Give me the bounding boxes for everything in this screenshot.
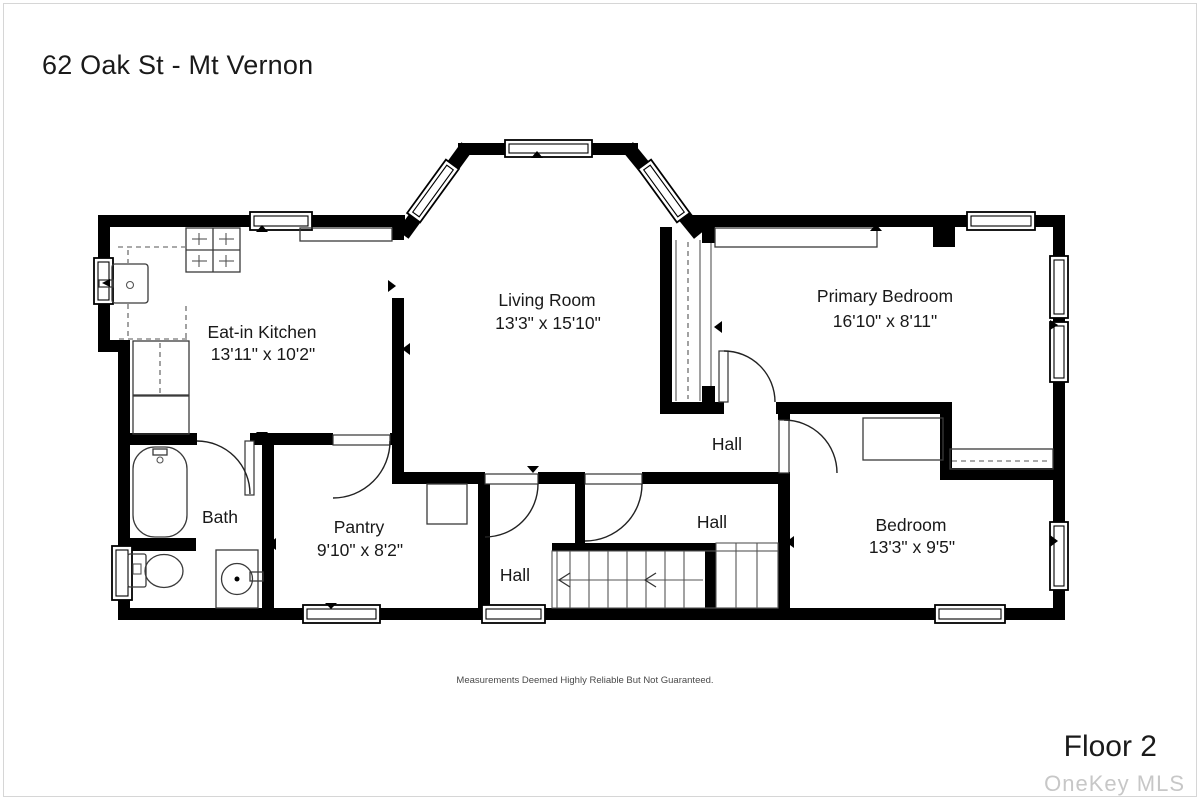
floor-label: Floor 2 <box>1064 730 1157 764</box>
kitchen-left-window <box>94 258 113 304</box>
bath-door <box>197 441 254 495</box>
kitchen-counter <box>300 228 392 241</box>
toilet <box>128 554 183 588</box>
bathtub <box>133 447 187 537</box>
kitchen-dims: 13'11" x 10'2" <box>211 344 315 364</box>
stove <box>186 228 240 272</box>
primary-right-window-lower <box>1050 322 1068 382</box>
hall-middle-label: Hall <box>697 512 727 532</box>
primary-bedroom-dims: 16'10" x 8'11" <box>833 311 937 331</box>
primary-bedroom-door <box>719 351 775 402</box>
bedroom-closet <box>863 418 943 460</box>
bedroom-dims: 13'3" x 9'5" <box>869 537 955 557</box>
upper-stair-strip <box>676 240 711 401</box>
living-room-label: Living Room <box>498 290 595 310</box>
hall-bottom-window <box>482 605 545 623</box>
bath-fixtures <box>128 447 263 608</box>
staircase <box>552 543 778 608</box>
hall-landing-door <box>585 474 642 541</box>
bedroom-bottom-window <box>935 605 1005 623</box>
bedroom-door <box>779 420 837 473</box>
nook-closet-shelf <box>950 449 1053 469</box>
bedroom-right-window <box>1050 522 1068 590</box>
pantry-bottom-window <box>303 605 380 623</box>
kitchen-top-window <box>250 212 312 230</box>
primary-closet-shelf <box>715 228 877 247</box>
bay-right-window <box>638 160 690 223</box>
floor-plan-page: 62 Oak St - Mt Vernon <box>0 0 1200 800</box>
kitchen-label: Eat-in Kitchen <box>208 322 317 342</box>
pantry-dims: 9'10" x 8'2" <box>317 540 403 560</box>
disclaimer-text: Measurements Deemed Highly Reliable But … <box>0 675 1170 686</box>
pantry-door <box>333 435 390 498</box>
pantry-shelf <box>427 484 467 524</box>
primary-top-window <box>967 212 1035 230</box>
primary-right-window-upper <box>1050 256 1068 318</box>
bay-left-window <box>407 160 459 223</box>
hall-upper-label: Hall <box>712 434 742 454</box>
bedroom-label: Bedroom <box>875 515 946 535</box>
primary-bedroom-label: Primary Bedroom <box>817 286 953 306</box>
hall-lower-label: Hall <box>500 565 530 585</box>
pantry-label: Pantry <box>334 517 385 537</box>
sink-vanity <box>216 550 263 608</box>
bay-center-window <box>505 140 592 157</box>
living-hall-door <box>485 474 538 537</box>
chimney <box>933 227 955 247</box>
bath-label: Bath <box>202 507 238 527</box>
watermark-onekey-mls: OneKey MLS <box>1044 771 1185 797</box>
living-room-dims: 13'3" x 15'10" <box>495 313 601 333</box>
